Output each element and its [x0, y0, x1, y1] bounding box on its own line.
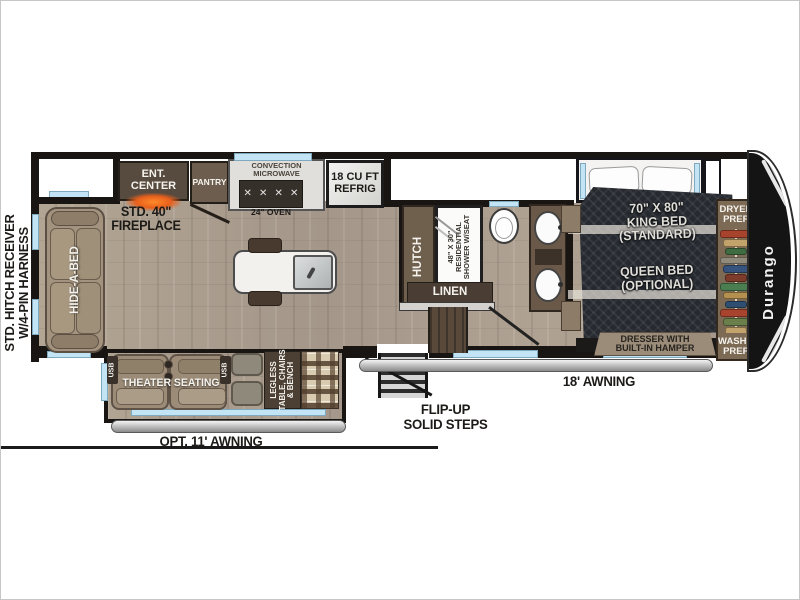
rv-floorplan: ENT. CENTER STD. 40"FIREPLACE PANTRY CON… [0, 0, 800, 600]
shower-label: 48" X 30"RESIDENTIALSHOWER W/SEAT [442, 204, 476, 290]
awning-main-label: 18' AWNING [552, 374, 646, 389]
dinette-label: LEGLESSTABLE, CHAIRS& BENCH [266, 348, 300, 412]
headboard-window [580, 163, 586, 199]
nightstand [561, 301, 581, 331]
clothing-item [723, 292, 750, 300]
kitchen-window [234, 153, 312, 161]
dinette-chair [231, 353, 263, 376]
oven-label: 24" OVEN [231, 208, 311, 217]
refrig-label2: REFRIG [329, 184, 381, 196]
microwave-label: CONVECTIONMICROWAVE [230, 162, 323, 178]
dresser-label2: BUILT-IN HAMPER [595, 344, 715, 353]
refrigerator: 18 CU FT REFRIG [326, 160, 384, 208]
seat-cushion [178, 388, 226, 405]
seat-headrest [116, 359, 164, 374]
dinette-bench [301, 351, 339, 409]
pantry-cabinet: PANTRY [190, 161, 229, 204]
clothing-item [723, 265, 750, 273]
clothing-item [723, 239, 750, 247]
bed-label-queen: QUEEN BED(OPTIONAL) [590, 262, 724, 294]
entry-landing [428, 307, 468, 353]
clothing-item [725, 327, 747, 333]
burner-icon: ✕ [244, 188, 252, 200]
nightstand [561, 205, 581, 233]
clothing-item [725, 301, 747, 309]
burner-icon: ✕ [259, 188, 267, 200]
theater-label: THEATER SEATING [116, 378, 226, 390]
usb-left-label: USB [108, 357, 118, 384]
toilet [489, 208, 519, 244]
hitch-label: STD. HITCH RECEIVERW/4-PIN HARNESS [3, 178, 31, 388]
rear-top-bay-wall [34, 197, 120, 204]
clothing-item [725, 248, 747, 256]
island-stool [248, 291, 282, 306]
cupholder-icon [164, 360, 173, 369]
rear-window-top [32, 214, 39, 250]
dresser-label-plate: DRESSER WITH BUILT-IN HAMPER [594, 332, 716, 356]
dinette-chair [231, 381, 263, 406]
toilet-window [489, 201, 519, 207]
hide-a-bed-label: HIDE-A-BED [67, 215, 83, 345]
bed-label-king: 70" X 80"KING BED(STANDARD) [590, 199, 724, 245]
island-stool [248, 238, 282, 253]
burner-icon: ✕ [275, 188, 283, 200]
fireplace-label: STD. 40"FIREPLACE [90, 205, 203, 233]
burner-icon: ✕ [290, 188, 298, 200]
seat-headrest [178, 359, 226, 374]
toilet-seat [495, 217, 513, 239]
pantry-label: PANTRY [193, 178, 227, 187]
usb-right-label: USB [221, 357, 231, 384]
linen-label: LINEN [433, 286, 468, 298]
clothing-item [725, 274, 747, 282]
clothing-item [723, 318, 750, 326]
ent-center-label2: CENTER [120, 181, 187, 193]
steps-label: FLIP-UPSOLID STEPS [387, 402, 505, 431]
awning-opt-bar [111, 420, 346, 433]
awning-main-bar [359, 359, 713, 372]
vanity-mid-cabinet [535, 249, 562, 265]
cooktop: ✕ ✕ ✕ ✕ [239, 180, 303, 208]
bottom-divider-line [1, 446, 438, 449]
linen-cabinet: LINEN [407, 282, 493, 303]
bedroom-window [704, 159, 721, 199]
seat-cushion [116, 388, 164, 405]
rear-window-bottom [32, 299, 39, 335]
faucet-icon [558, 282, 563, 287]
brand-logo: Durango [758, 222, 778, 342]
